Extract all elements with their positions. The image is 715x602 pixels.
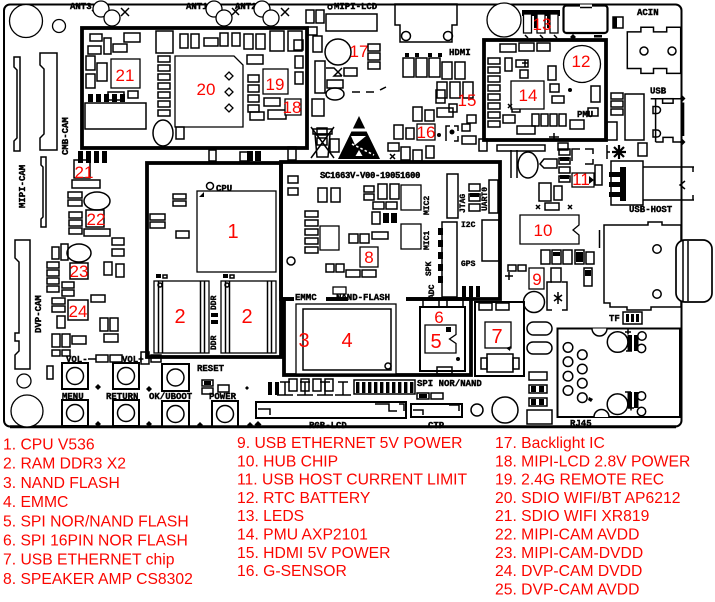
svg-text:DDR: DDR (210, 335, 219, 350)
svg-text:17: 17 (350, 42, 369, 61)
svg-text:16. G-SENSOR: 16. G-SENSOR (237, 563, 347, 580)
svg-text:MIC1: MIC1 (423, 231, 432, 250)
svg-text:JTAG: JTAG (459, 194, 468, 213)
svg-text:23. MIPI-CAM-DVDD: 23. MIPI-CAM-DVDD (495, 545, 643, 562)
svg-text:PMU: PMU (577, 110, 593, 120)
svg-text:4: 4 (341, 330, 352, 352)
svg-text:12: 12 (572, 52, 591, 71)
svg-text:22: 22 (87, 210, 106, 229)
svg-text:MIC2: MIC2 (423, 196, 432, 215)
svg-text:3. NAND FLASH: 3. NAND FLASH (3, 475, 120, 492)
svg-text:SPI NOR/NAND: SPI NOR/NAND (417, 379, 482, 389)
svg-text:17. Backlight IC: 17. Backlight IC (495, 435, 605, 452)
svg-text:RGB-LCD: RGB-LCD (309, 421, 347, 431)
svg-text:5. SPI NOR/NAND FLASH: 5. SPI NOR/NAND FLASH (3, 513, 189, 530)
svg-text:14: 14 (519, 86, 538, 105)
svg-text:DVP-CAM: DVP-CAM (34, 295, 44, 333)
svg-text:2: 2 (174, 306, 185, 328)
svg-text:15. HDMI 5V POWER: 15. HDMI 5V POWER (237, 545, 390, 562)
svg-text:ANT1: ANT1 (186, 2, 208, 12)
svg-text:ACIN: ACIN (637, 8, 659, 18)
svg-text:RESET: RESET (197, 364, 225, 374)
svg-text:9. USB ETHERNET 5V POWER: 9. USB ETHERNET 5V POWER (237, 435, 463, 452)
svg-text:6. SPI 16PIN NOR FLASH: 6. SPI 16PIN NOR FLASH (3, 533, 188, 550)
svg-text:19: 19 (266, 75, 285, 94)
svg-text:CMB-CAM: CMB-CAM (61, 117, 71, 155)
svg-text:15: 15 (458, 91, 477, 110)
svg-text:13. LEDS: 13. LEDS (237, 508, 304, 525)
svg-text:MIPI-LCD: MIPI-LCD (334, 2, 378, 12)
svg-text:24. DVP-CAM DVDD: 24. DVP-CAM DVDD (495, 563, 642, 580)
svg-text:21: 21 (75, 163, 94, 182)
svg-text:10: 10 (534, 221, 553, 240)
svg-text:3: 3 (298, 330, 309, 352)
svg-text:18: 18 (283, 98, 302, 117)
svg-text:22. MIPI-CAM AVDD: 22. MIPI-CAM AVDD (495, 527, 639, 544)
svg-text:10. HUB CHIP: 10. HUB CHIP (237, 453, 338, 470)
svg-text:2. RAM DDR3 X2: 2. RAM DDR3 X2 (3, 456, 126, 473)
svg-text:USB: USB (650, 87, 667, 97)
svg-text:9: 9 (532, 270, 541, 289)
svg-text:TF: TF (609, 314, 620, 324)
svg-text:11: 11 (572, 170, 590, 189)
svg-text:23: 23 (70, 262, 89, 281)
svg-text:MIPI-CAM: MIPI-CAM (18, 165, 28, 208)
svg-text:19. 2.4G REMOTE REC: 19. 2.4G REMOTE REC (495, 472, 664, 489)
svg-text:13: 13 (533, 15, 552, 34)
svg-text:6: 6 (434, 308, 443, 327)
svg-text:20: 20 (197, 80, 216, 99)
svg-text:CTP: CTP (428, 421, 445, 431)
svg-text:21. SDIO WIFI XR819: 21. SDIO WIFI XR819 (495, 508, 649, 525)
svg-text:4. EMMC: 4. EMMC (3, 494, 68, 511)
svg-text:USB-HOST: USB-HOST (629, 205, 673, 215)
svg-text:1. CPU V536: 1. CPU V536 (3, 437, 95, 454)
svg-text:SPK: SPK (425, 261, 434, 276)
svg-text:HDMI: HDMI (449, 48, 471, 58)
svg-text:RJ45: RJ45 (570, 419, 592, 429)
svg-text:20. SDIO WIFI/BT AP6212: 20. SDIO WIFI/BT AP6212 (495, 490, 680, 507)
svg-text:16: 16 (417, 123, 436, 142)
svg-text:7: 7 (491, 326, 502, 348)
svg-text:SC1663V-V00-19051600: SC1663V-V00-19051600 (320, 171, 420, 181)
svg-text:NAND-FLASH: NAND-FLASH (336, 293, 390, 303)
svg-text:EMMC: EMMC (295, 293, 317, 303)
svg-text:24: 24 (69, 302, 88, 321)
svg-text:DDR: DDR (210, 295, 219, 310)
svg-text:GPS: GPS (461, 260, 476, 269)
svg-text:8: 8 (364, 248, 373, 267)
svg-text:ANT3: ANT3 (70, 2, 92, 12)
svg-text:21: 21 (116, 66, 135, 85)
svg-text:11. USB HOST CURRENT LIMIT: 11. USB HOST CURRENT LIMIT (237, 472, 468, 489)
svg-text:7. USB ETHERNET chip: 7. USB ETHERNET chip (3, 552, 175, 569)
svg-text:25. DVP-CAM AVDD: 25. DVP-CAM AVDD (495, 581, 639, 598)
svg-text:2: 2 (241, 306, 252, 328)
svg-text:ANT2: ANT2 (235, 2, 257, 12)
svg-text:5: 5 (430, 331, 441, 353)
svg-text:I2C: I2C (461, 221, 476, 230)
svg-text:18. MIPI-LCD 2.8V POWER: 18. MIPI-LCD 2.8V POWER (495, 453, 690, 470)
svg-text:1: 1 (227, 221, 238, 243)
svg-text:12. RTC BATTERY: 12. RTC BATTERY (237, 490, 371, 507)
svg-text:ADC: ADC (428, 284, 437, 299)
svg-text:14. PMU AXP2101: 14. PMU AXP2101 (237, 527, 368, 544)
svg-text:8. SPEAKER AMP CS8302: 8. SPEAKER AMP CS8302 (3, 571, 193, 588)
